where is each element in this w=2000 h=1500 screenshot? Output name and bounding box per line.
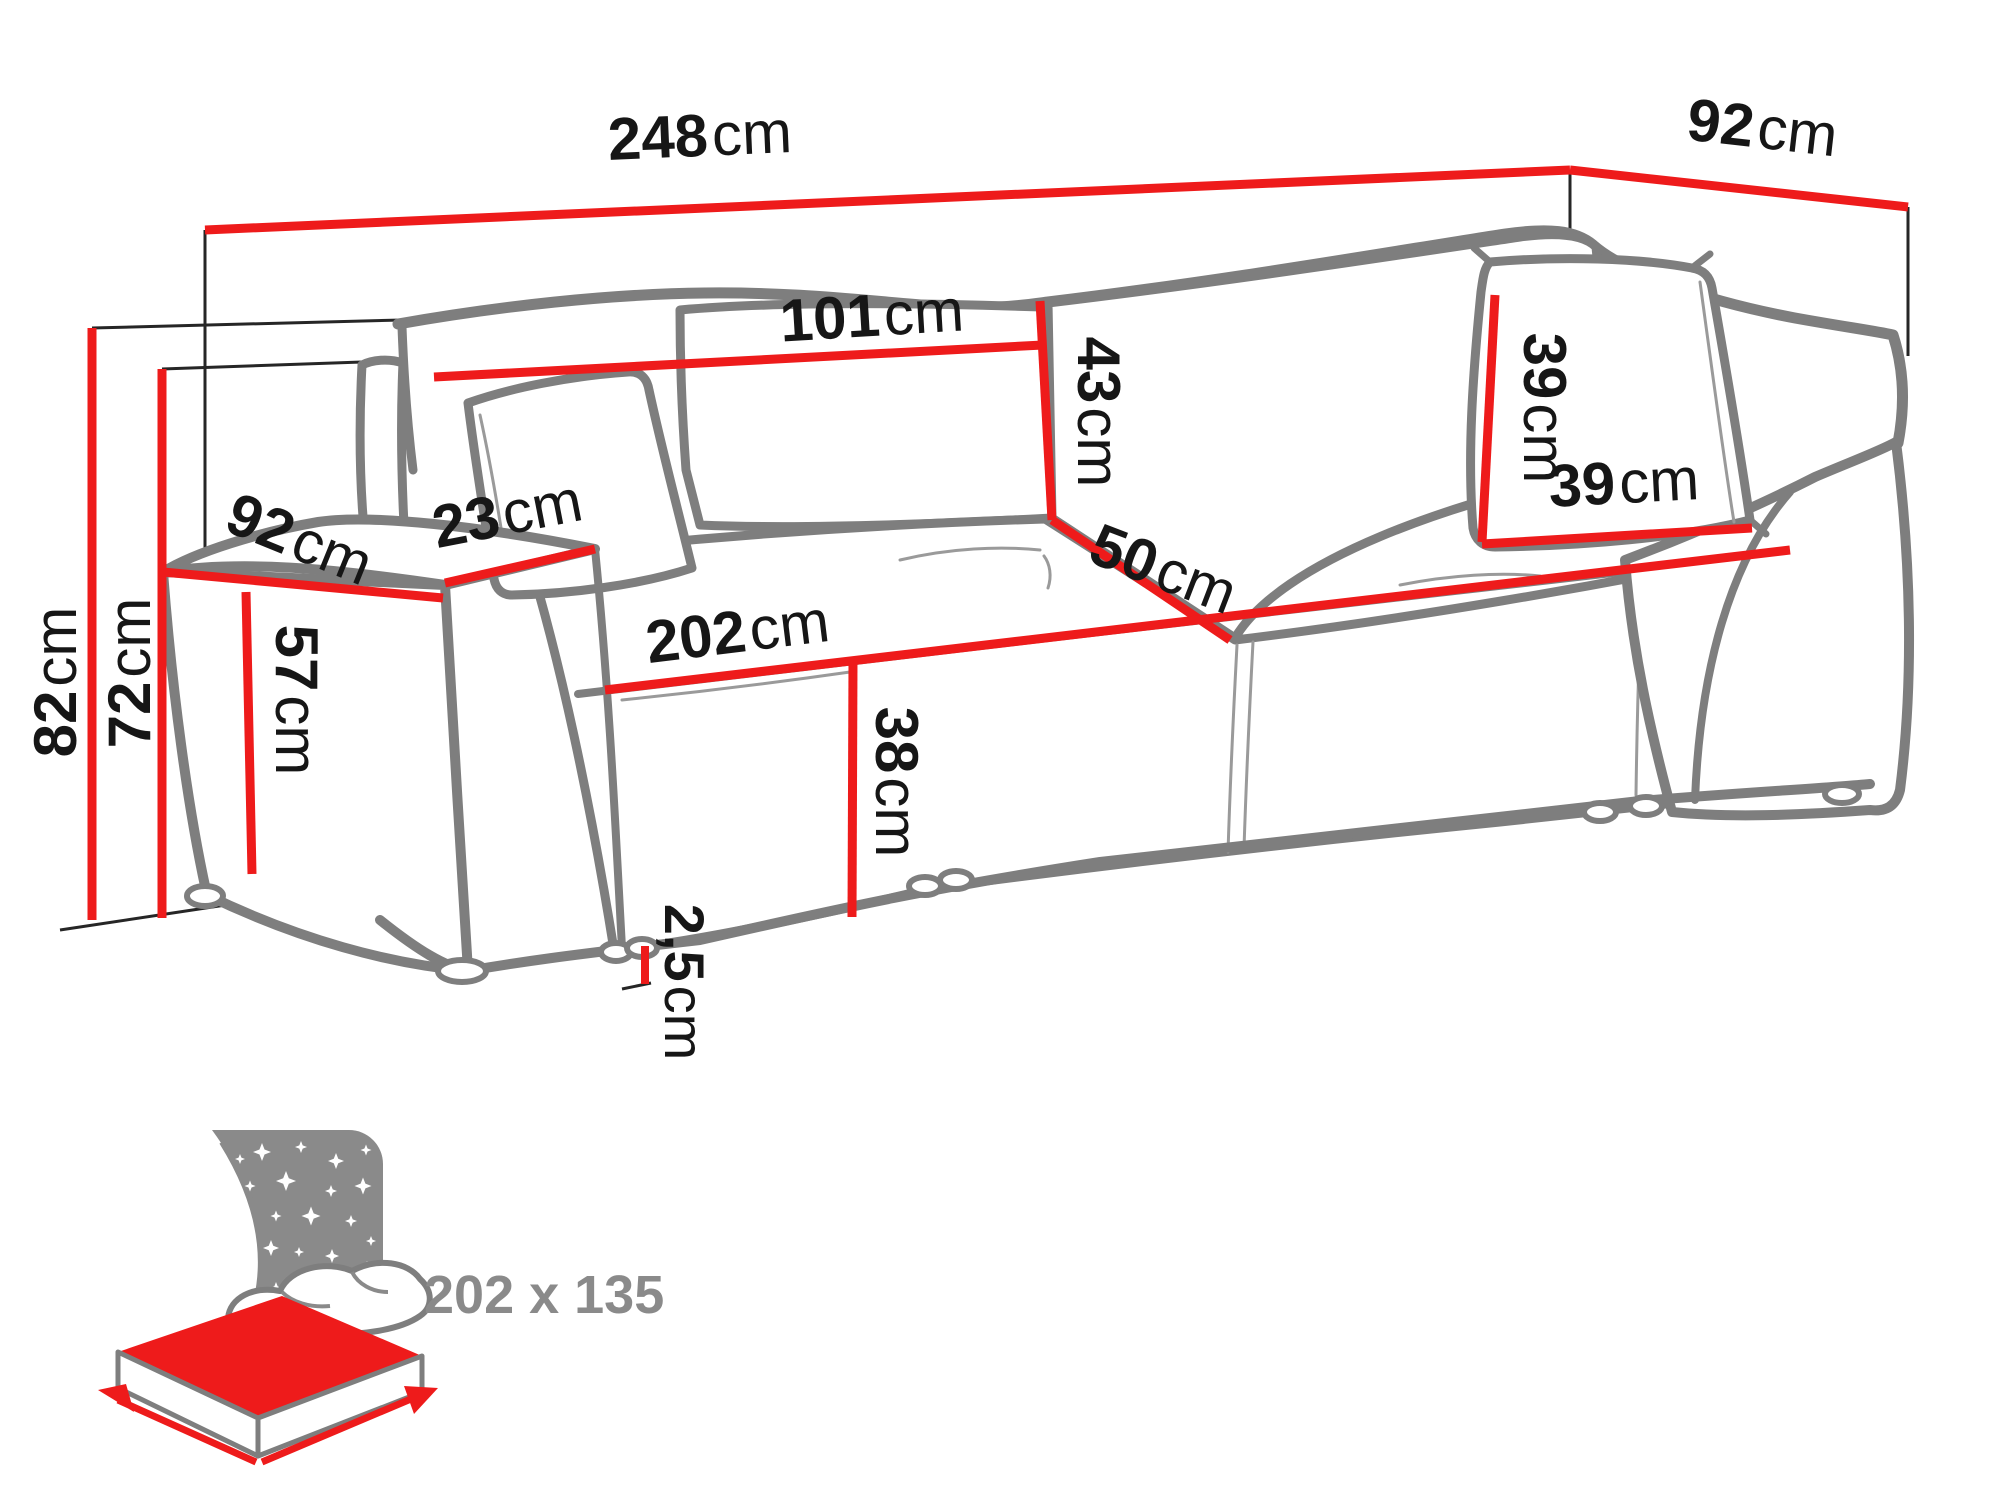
dim-back-cushion-width-label: 101cm <box>778 276 966 354</box>
dim-back-cushion-height-label: 43cm <box>1065 337 1132 488</box>
dim-seat-height-label: 38cm <box>863 707 930 858</box>
dimension-line-seat-height <box>852 661 853 917</box>
sleeping-function-icon: 202 x 135 <box>98 1130 664 1462</box>
dim-leg-height-label: 2,5cm <box>653 904 716 1061</box>
sofa-dimension-diagram: 248cm 92cm 101cm 43cm 50cm 92cm 23cm 82c… <box>0 0 2000 1500</box>
dim-pillow-width-label: 39cm <box>1547 445 1701 520</box>
dim-total-width-label: 248cm <box>606 98 793 173</box>
dimension-line-total-width <box>205 170 1570 230</box>
dim-total-height-label: 82cm <box>22 607 89 758</box>
dim-frame-height-label: 72cm <box>96 598 163 749</box>
dimension-line-total-depth <box>1570 170 1908 207</box>
dim-total-depth-label: 92cm <box>1684 86 1841 170</box>
dimension-line-armrest-height <box>246 592 252 874</box>
bed-size-label: 202 x 135 <box>424 1265 664 1325</box>
diagram-canvas: 248cm 92cm 101cm 43cm 50cm 92cm 23cm 82c… <box>0 0 2000 1500</box>
dim-armrest-height-label: 57cm <box>263 625 330 776</box>
